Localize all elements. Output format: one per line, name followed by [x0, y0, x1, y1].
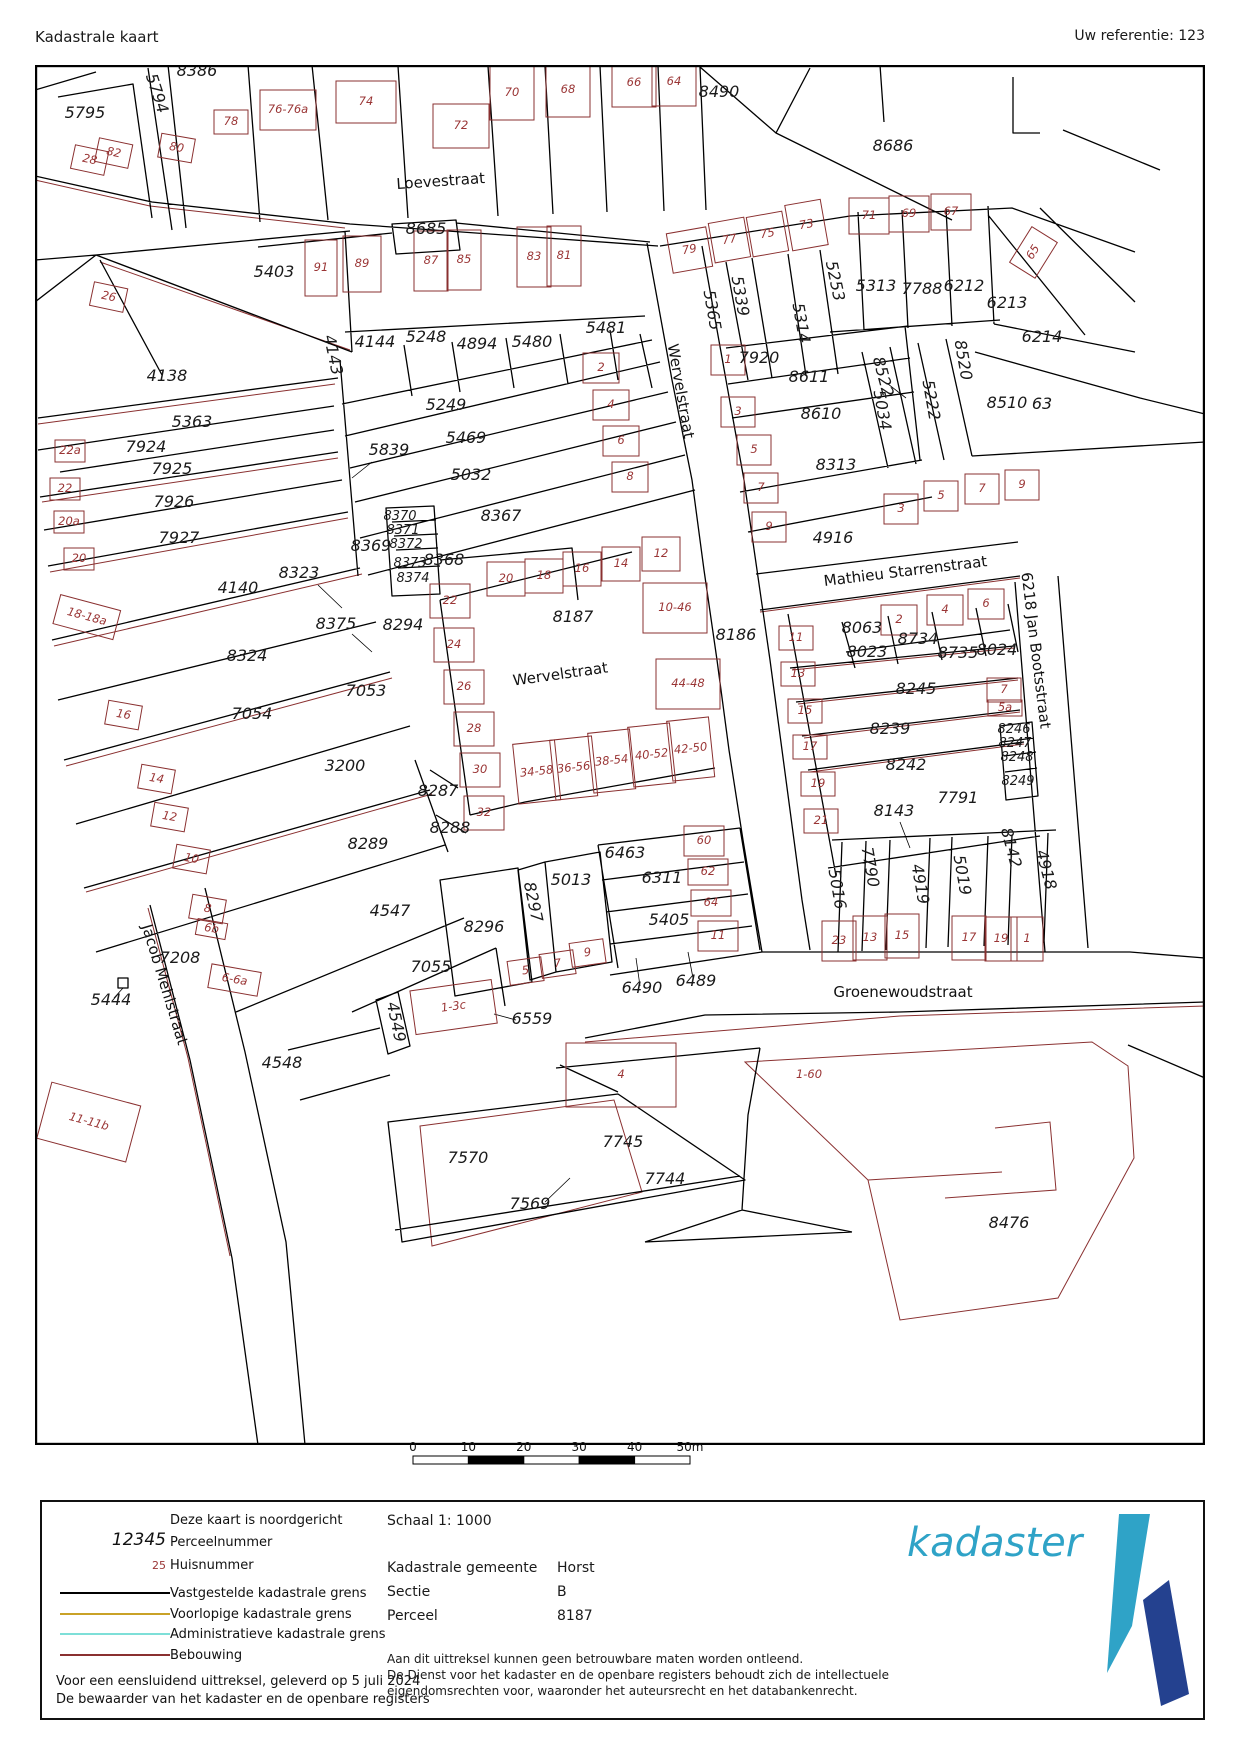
house-number: 64: [667, 74, 682, 88]
house-number: 34-58: [519, 762, 554, 779]
parcel-number: 4138: [147, 366, 188, 385]
house-number: 1: [1023, 931, 1030, 945]
house-number: 81: [557, 248, 572, 262]
house-number: 7: [553, 956, 563, 971]
parcel-number: 8246: [997, 722, 1030, 737]
parcel-number: 5016: [825, 867, 851, 910]
north-note: Deze kaart is noordgericht: [170, 1513, 343, 1528]
parcel-number: 6213: [987, 293, 1028, 312]
street-name: Wervelstraat: [664, 342, 698, 440]
house-number: 76-76a: [268, 102, 308, 116]
parcel-number: 8239: [870, 719, 911, 738]
administrative-boundary-label: Administratieve kadastrale grens: [170, 1627, 385, 1642]
scale-tick-label: 40: [627, 1440, 642, 1454]
parcel-number: 5032: [451, 465, 492, 484]
parcel-number: 7791: [938, 788, 979, 807]
scale-bar-segment: [635, 1456, 690, 1464]
disclaimer-line-1: Aan dit uittreksel kunnen geen betrouwba…: [387, 1652, 803, 1666]
parcel-number: 6214: [1022, 327, 1063, 346]
house-number: 4: [941, 602, 948, 616]
house-number: 71: [862, 208, 877, 222]
parcel-number: 4547: [370, 901, 412, 920]
disclaimer-line-2: De Dienst voor het kadaster en de openba…: [387, 1668, 889, 1682]
parcel-number: 7053: [346, 681, 387, 700]
house-number: 69: [902, 206, 917, 220]
provisional-boundary-line: [60, 1613, 170, 1615]
house-number: 6b: [203, 920, 220, 936]
parcel-number: 5795: [65, 103, 106, 122]
house-number: 20: [72, 551, 87, 565]
scale-tick-label: 0: [409, 1440, 417, 1454]
parcel-number: 8186: [716, 625, 757, 644]
parcel-number: 8289: [348, 834, 389, 853]
parcel-number: 5313: [856, 276, 897, 295]
house-number: 2: [895, 612, 902, 626]
house-number: 14: [148, 770, 165, 786]
house-number: 5a: [998, 700, 1012, 714]
house-number: 75: [759, 225, 776, 241]
house-number: 6-6a: [221, 970, 249, 988]
parcel-number: 7744: [645, 1169, 686, 1188]
section-label: Sectie: [387, 1584, 430, 1600]
house-number: 9: [765, 519, 772, 533]
parcel-number: 7924: [126, 437, 167, 456]
kadaster-logo: kadaster: [887, 1508, 1197, 1712]
parcel-number: 8368: [424, 550, 465, 569]
parcel-number: 8247: [998, 736, 1032, 751]
house-number: 62: [701, 864, 716, 878]
house-number: 40-52: [634, 745, 669, 762]
house-number: 16: [115, 706, 132, 722]
house-number: 64: [704, 895, 719, 909]
map-labels: 8386579457958685849086865403414341445248…: [58, 65, 1063, 1232]
parcel-number: 7920: [739, 348, 780, 367]
parcel-number: 5339: [728, 274, 754, 317]
parcel-number: 8063: [842, 618, 883, 637]
house-number: 19: [811, 776, 826, 790]
parcel-number: 5222: [919, 378, 945, 421]
house-number: 83: [527, 249, 542, 263]
municipality-value: Horst: [557, 1560, 595, 1576]
house-number: 15: [798, 703, 813, 717]
parcel-number: 5363: [172, 412, 213, 431]
house-number: 28: [81, 151, 98, 168]
house-number: 36-56: [556, 758, 591, 775]
house-number: 38-54: [594, 751, 629, 768]
parcel-number: 8374: [396, 571, 429, 586]
parcel-number-label: Perceelnummer: [170, 1535, 272, 1550]
house-number: 78: [224, 114, 239, 128]
house-number: 15: [895, 928, 910, 942]
house-number: 26: [100, 288, 117, 305]
legend-panel: Deze kaart is noordgericht 12345 Perceel…: [40, 1500, 1205, 1720]
parcel-number: 4549: [383, 1000, 410, 1044]
parcel-number: 5481: [586, 318, 627, 337]
parcel-number: 8371: [386, 523, 419, 538]
parcel-number: 8490: [699, 82, 740, 101]
registrar-note: De bewaarder van het kadaster en de open…: [56, 1692, 430, 1707]
house-number: 24: [447, 637, 462, 651]
parcel-label: Perceel: [387, 1608, 438, 1624]
house-number: 17: [803, 739, 818, 753]
parcel-number: 8249: [1001, 774, 1034, 789]
house-number: 7: [978, 481, 986, 495]
parcel-number: 8323: [279, 563, 320, 582]
street-name: Jacob Mehlstraat: [138, 921, 192, 1047]
parcel-number: 8685: [406, 219, 447, 238]
parcel-number: 5249: [426, 395, 467, 414]
parcel-number: 6463: [605, 843, 646, 862]
house-number: 91: [314, 260, 329, 274]
established-boundary-line: [60, 1592, 170, 1594]
house-number: 30: [473, 762, 488, 776]
parcel-number: 5314: [789, 301, 815, 344]
parcel-number: 3200: [325, 756, 366, 775]
house-number: 44-48: [671, 676, 704, 690]
parcel-number: 4916: [813, 528, 854, 547]
house-number: 42-50: [673, 739, 708, 756]
house-number: 10-46: [658, 600, 691, 614]
scale-bar: 01020304050m: [390, 1438, 730, 1484]
parcel-number: 8242: [886, 755, 927, 774]
parcel-number: 7745: [603, 1132, 644, 1151]
parcel-number: 6212: [944, 276, 985, 295]
parcel-number: 8372: [389, 537, 422, 552]
parcel-number: 4143: [320, 333, 347, 377]
building-line: [60, 1654, 170, 1656]
house-number: 77: [721, 231, 739, 247]
parcel-number: 8324: [227, 646, 268, 665]
parcel-number: 4144: [355, 332, 396, 351]
parcel-number: 5253: [822, 259, 849, 303]
house-number: 68: [561, 82, 576, 96]
house-number: 65: [1023, 242, 1043, 262]
parcel-number: 7054: [232, 704, 273, 723]
parcel-number: 5403: [254, 262, 295, 281]
parcel-number: 8734: [898, 629, 939, 648]
house-number: 11: [711, 928, 726, 942]
house-number: 73: [798, 216, 815, 232]
parcel-number: 7788: [902, 279, 943, 298]
parcel-number: 8288: [430, 818, 471, 837]
parcel-number: 5013: [551, 870, 592, 889]
scale-tick-label: 10: [461, 1440, 476, 1454]
parcel-number: 5794: [142, 71, 173, 116]
house-number: 13: [863, 930, 878, 944]
parcel-number: 8373: [393, 556, 426, 571]
kadaster-logo-blade-light: [1107, 1514, 1150, 1673]
parcel-number: 8510: [987, 393, 1028, 412]
house-number: 18-18a: [66, 604, 109, 628]
parcel-number: 7055: [411, 957, 452, 976]
parcel-number: 8296: [464, 917, 505, 936]
house-number: 79: [681, 241, 698, 257]
house-number: 16: [575, 561, 590, 575]
house-number: 18: [537, 568, 552, 582]
cadastral-map: 8386579457958685849086865403414341445248…: [35, 65, 1205, 1445]
parcel-number: 8476: [989, 1213, 1030, 1232]
house-number: 4: [607, 397, 614, 411]
parcel-number: 8287: [418, 781, 460, 800]
house-number: 7: [757, 480, 765, 494]
parcel-number: 8143: [874, 801, 915, 820]
house-number: 32: [477, 805, 492, 819]
parcel-number: 5480: [512, 332, 553, 351]
house-number: 6: [617, 433, 624, 447]
parcel-number: 5248: [406, 327, 447, 346]
parcel-number: 4548: [262, 1053, 303, 1072]
parcel-number: 63: [1032, 394, 1052, 413]
parcel-number: 7569: [510, 1194, 551, 1213]
house-number: 72: [454, 118, 469, 132]
parcel-number: 8611: [789, 367, 830, 386]
house-number: 7: [1000, 682, 1008, 696]
provisional-boundary-label: Voorlopige kadastrale grens: [170, 1607, 352, 1622]
house-number: 4: [617, 1067, 624, 1081]
house-number: 1-60: [796, 1067, 822, 1081]
house-number: 85: [457, 252, 472, 266]
building-label: Bebouwing: [170, 1648, 242, 1663]
parcel-number: 7927: [159, 528, 201, 547]
house-number: 22: [443, 593, 458, 607]
house-number: 5: [750, 442, 757, 456]
parcel-number: 7570: [448, 1148, 489, 1167]
parcel-number: 8313: [816, 455, 857, 474]
kadaster-logo-blade-dark: [1143, 1580, 1189, 1706]
parcel-number: 5019: [950, 853, 976, 896]
house-number: 28: [467, 721, 482, 735]
administrative-boundary-line: [60, 1633, 170, 1635]
house-number: 17: [962, 930, 977, 944]
established-boundary-label: Vastgestelde kadastrale grens: [170, 1586, 367, 1601]
street-name: Mathieu Starrenstraat: [823, 552, 988, 590]
parcel-number: 8024: [977, 640, 1018, 659]
parcel-number: 8370: [383, 509, 416, 524]
parcel-number: 5365: [700, 288, 726, 331]
parcel-number: 4894: [457, 334, 498, 353]
house-number: 1: [724, 352, 731, 366]
house-number-symbol: 25: [82, 1559, 166, 1572]
house-number-label: Huisnummer: [170, 1558, 254, 1573]
house-number: 80: [168, 139, 185, 155]
parcel-number-symbol: 12345: [82, 1530, 166, 1550]
parcel-number: 8248: [1000, 750, 1033, 765]
house-number: 11-11b: [68, 1109, 111, 1133]
house-number: 5: [937, 488, 944, 502]
house-number: 9: [1018, 477, 1025, 491]
house-number: 74: [359, 94, 374, 108]
house-number: 22: [58, 481, 73, 495]
page-title: Kadastrale kaart: [35, 28, 159, 46]
house-number: 20: [499, 571, 514, 585]
parcel-number: 5469: [446, 428, 487, 447]
scale-text: Schaal 1: 1000: [387, 1513, 492, 1529]
parcel-number: 8610: [801, 404, 842, 423]
parcel-number: 6559: [512, 1009, 553, 1028]
house-number: 22a: [59, 443, 81, 457]
parcel-number: 8375: [316, 614, 357, 633]
house-number: 89: [355, 256, 370, 270]
house-number: 12: [654, 546, 669, 560]
house-number: 10: [183, 850, 200, 866]
parcel-number: 7925: [152, 459, 193, 478]
scale-tick-label: 30: [572, 1440, 587, 1454]
house-number: 82: [105, 144, 122, 161]
parcel-number: 8367: [481, 506, 523, 525]
house-number: 19: [994, 931, 1009, 945]
scale-end-label: 50m: [677, 1440, 704, 1454]
parcel-number: 7926: [154, 492, 195, 511]
reference-number: Uw referentie: 123: [1074, 28, 1205, 44]
street-name: Loevestraat: [396, 169, 486, 193]
house-number: 13: [791, 666, 806, 680]
house-number: 3: [897, 501, 904, 515]
extract-date-note: Voor een eensluidend uittreksel, gelever…: [56, 1674, 420, 1689]
scale-tick-label: 20: [516, 1440, 531, 1454]
street-name: Groenewoudstraat: [833, 983, 972, 1001]
parcel-number: 5444: [91, 990, 132, 1009]
house-number: 20a: [58, 514, 80, 528]
parcel-number: 8386: [177, 65, 218, 80]
house-number: 12: [161, 808, 178, 824]
scale-bar-segment: [413, 1456, 468, 1464]
house-number: 67: [944, 204, 959, 218]
parcel-number: 8245: [896, 679, 937, 698]
parcel-number: 8023: [847, 642, 888, 661]
parcel-number: 8686: [873, 136, 914, 155]
municipality-label: Kadastrale gemeente: [387, 1560, 537, 1576]
parcel-number: 6490: [622, 978, 663, 997]
parcel-number: 4918: [1032, 847, 1061, 891]
parcel-number: 5405: [649, 910, 690, 929]
house-number: 70: [505, 85, 520, 99]
house-number: 60: [697, 833, 712, 847]
house-number: 23: [832, 933, 847, 947]
cadastral-extract-page: Kadastrale kaart Uw referentie: 123 8386…: [0, 0, 1240, 1755]
parcel-number: 6311: [642, 868, 683, 887]
parcel-number: 8294: [383, 615, 424, 634]
house-number: 26: [457, 679, 472, 693]
kadaster-logo-text: kadaster: [907, 1520, 1085, 1566]
parcel-number: 8187: [553, 607, 595, 626]
house-number: 3: [734, 404, 741, 418]
scale-bar-segment: [524, 1456, 579, 1464]
house-number: 66: [627, 75, 642, 89]
house-number: 11: [789, 630, 804, 644]
parcel-number: 8735: [938, 643, 979, 662]
street-name: 6218 Jan Bootsstraat: [1017, 571, 1054, 729]
parcel-value: 8187: [557, 1608, 593, 1624]
scale-bar-segment: [579, 1456, 634, 1464]
house-number: 21: [814, 813, 829, 827]
house-number: 6: [982, 596, 989, 610]
parcel-number: 7790: [858, 845, 884, 888]
parcel-number: 4140: [218, 578, 259, 597]
house-number: 1-3c: [440, 997, 467, 1014]
scale-bar-segment: [468, 1456, 523, 1464]
section-value: B: [557, 1584, 567, 1600]
parcel-number: 8369: [351, 536, 392, 555]
house-number: 14: [614, 556, 629, 570]
house-number: 8: [626, 469, 633, 483]
disclaimer-line-3: eigendomsrechten voor, waaronder het aut…: [387, 1684, 858, 1698]
house-number: 87: [424, 253, 439, 267]
house-number: 9: [583, 945, 592, 960]
street-name: Wervelstraat: [512, 658, 609, 689]
parcel-number: 6489: [676, 971, 717, 990]
house-number: 2: [597, 360, 604, 374]
parcel-number: 5839: [369, 440, 410, 459]
